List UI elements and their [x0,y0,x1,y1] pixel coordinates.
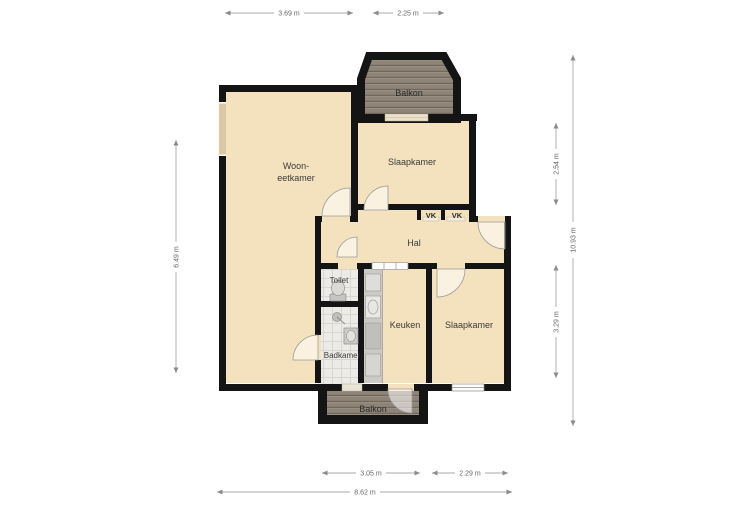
living-window [219,103,226,155]
dim-bottom-bedroom: 2.29 m [459,471,481,478]
wall-segment [351,85,358,222]
window-edge [219,102,226,104]
washbasin-bowl-icon [347,331,356,342]
door-opening [338,263,357,269]
label-toilet: Toilet [330,276,349,285]
wall-segment [441,204,445,220]
label-woon-eetkamer-line2: eetkamer [277,173,315,183]
label-slaapkamer-top: Slaapkamer [388,157,436,167]
kitchen-appliance [366,274,381,291]
wall-segment [315,301,364,307]
dim-top-living: 3.69 m [278,11,300,18]
wall-segment [358,263,364,383]
label-balkon-bottom: Balkon [359,404,387,414]
label-vk-left: VK [426,211,437,220]
dim-bottom-kitchen: 3.05 m [360,471,382,478]
label-keuken: Keuken [390,320,421,330]
door-opening [437,263,465,269]
dim-top-balcony: 2.25 m [397,11,419,18]
dim-bottom-total: 8.62 m [354,490,376,497]
label-woon-eetkamer-line1: Woon- [283,161,309,171]
dim-right-total: 10.93 m [571,227,578,252]
badkamer-balcony-window [342,384,362,391]
kitchen-stove [366,323,381,349]
label-slaapkamer-bottom: Slaapkamer [445,320,493,330]
wall-segment [219,85,361,92]
door-opening [322,216,350,222]
kitchen-appliance [366,354,381,376]
kitchen-hall-window [372,263,408,270]
window-edge [219,155,226,157]
floorplan: Woon- eetkamer Slaapkamer Balkon Hal VK … [0,0,750,530]
wall-segment [417,204,421,220]
label-balkon-top: Balkon [395,88,423,98]
dim-right-top: 2.54 m [554,153,561,175]
dim-right-bottom: 3.29 m [554,311,561,333]
dim-left: 6.49 m [174,246,181,268]
label-badkamer: Badkamer [324,351,361,360]
door-opening [478,216,505,222]
wall-segment [426,263,432,383]
floorplan-canvas: Woon- eetkamer Slaapkamer Balkon Hal VK … [0,0,750,530]
label-hal: Hal [407,238,421,248]
label-vk-right: VK [452,211,463,220]
